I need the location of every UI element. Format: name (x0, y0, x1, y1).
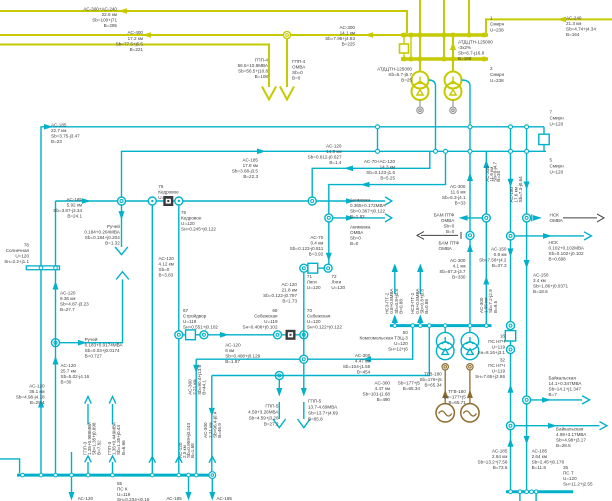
svg-text:4.47 км: 4.47 км (355, 358, 370, 363)
svg-text:14.3 км: 14.3 км (326, 149, 341, 154)
svg-text:ОМВА: ОМВА (550, 218, 564, 223)
svg-text:B=221: B=221 (130, 47, 144, 52)
svg-text:Sb=0.612-j0.627: Sb=0.612-j0.627 (308, 155, 342, 160)
svg-text:B=1.73: B=1.73 (282, 299, 297, 304)
svg-text:Sb=104-j1.55: Sb=104-j1.55 (343, 364, 371, 369)
svg-text:Sb=4.59+j3.26: Sb=4.59+j3.26 (249, 416, 279, 421)
svg-text:Sb=0.184+j0.204: Sb=0.184+j0.204 (85, 235, 120, 240)
svg-text:B=44.1: B=44.1 (201, 380, 206, 395)
svg-text:B=65.34: B=65.34 (403, 386, 421, 391)
svg-text:U=120: U=120 (15, 254, 29, 259)
svg-text:16: 16 (500, 334, 506, 339)
svg-text:Sb=5.02-j4.16: Sb=5.02-j4.16 (61, 374, 90, 379)
svg-text:Sb=176+j5: Sb=176+j5 (419, 377, 442, 382)
svg-text:АС-240: АС-240 (566, 16, 582, 21)
svg-text:АС-70+АС-120: АС-70+АС-120 (364, 159, 396, 164)
svg-text:Sн=2.2+j1.1: Sн=2.2+j1.1 (4, 259, 29, 264)
svg-text:B=108: B=108 (255, 74, 269, 79)
svg-text:B=0.698: B=0.698 (549, 257, 567, 262)
svg-text:6 км: 6 км (225, 348, 234, 353)
svg-text:Sb=101-j1.68: Sb=101-j1.68 (363, 392, 391, 397)
svg-text:Sb=0: Sb=0 (350, 236, 361, 241)
svg-text:0.183+0.0174МВА: 0.183+0.0174МВА (85, 343, 124, 348)
svg-text:АС-400: АС-400 (128, 30, 144, 35)
svg-text:АС-300: АС-300 (340, 25, 356, 30)
svg-text:21.3 км: 21.3 км (566, 21, 581, 26)
svg-text:B=1.4: B=1.4 (329, 160, 342, 165)
svg-text:B=1.97: B=1.97 (225, 359, 240, 364)
svg-text:Sн=0.245+j0.122: Sн=0.245+j0.122 (181, 227, 216, 232)
svg-text:B=490: B=490 (377, 397, 391, 402)
svg-text:B=3.83: B=3.83 (159, 273, 174, 278)
svg-text:Смирн: Смирн (490, 72, 505, 77)
svg-text:4.59+3.26МВА: 4.59+3.26МВА (248, 410, 279, 415)
svg-text:Байкальская: Байкальская (549, 375, 577, 381)
svg-text:Sb=6.7-j6.7: Sb=6.7-j6.7 (388, 72, 412, 77)
svg-text:2.64 км: 2.64 км (532, 454, 547, 459)
svg-text:B=1.32: B=1.32 (105, 241, 120, 246)
svg-text:B=46.9: B=46.9 (217, 423, 222, 438)
svg-text:ГПП-4: ГПП-4 (292, 59, 306, 64)
svg-text:B=23: B=23 (51, 139, 62, 144)
svg-text:БАМ ПТФ: БАМ ПТФ (439, 241, 460, 246)
svg-text:Sb=13.7+j4.69: Sb=13.7+j4.69 (308, 411, 338, 416)
svg-text:Байкальская: Байкальская (556, 426, 584, 432)
svg-text:B=164: B=164 (566, 32, 580, 37)
svg-text:Sb=0.123-j0.811: Sb=0.123-j0.811 (290, 246, 324, 251)
svg-text:B=28.5: B=28.5 (556, 443, 571, 448)
svg-text:50: 50 (403, 330, 409, 335)
svg-text:B=65.8: B=65.8 (308, 417, 323, 422)
svg-text:B=25: B=25 (401, 78, 412, 83)
svg-text:U=120: U=120 (563, 476, 577, 481)
svg-text:Sb=100+j71: Sb=100+j71 (92, 17, 117, 22)
svg-text:ПС НГЧ: ПС НГЧ (488, 339, 505, 344)
svg-text:Sb=2.45+j0.178: Sb=2.45+j0.178 (532, 460, 565, 465)
svg-text:4.98+3.17МВА: 4.98+3.17МВА (556, 432, 587, 437)
svg-text:Sн=11.2+j2.55: Sн=11.2+j2.55 (563, 481, 593, 486)
svg-text:21.8 км: 21.8 км (282, 288, 297, 293)
svg-text:56.5+10.8МВА: 56.5+10.8МВА (238, 63, 269, 68)
svg-text:АС-70: АС-70 (310, 235, 323, 240)
svg-text:17.8 км: 17.8 км (243, 163, 258, 168)
svg-text:2.64 км: 2.64 км (492, 454, 507, 459)
svg-text:Sb=67.2-j3.7: Sb=67.2-j3.7 (439, 269, 466, 274)
svg-text:Sb=7.95+j4.83: Sb=7.95+j4.83 (325, 36, 355, 41)
svg-text:Стройдвор: Стройдвор (183, 313, 207, 319)
svg-text:0.184+0.204МВА: 0.184+0.204МВА (84, 230, 120, 235)
svg-text:B=295: B=295 (104, 23, 118, 28)
svg-text:Sb=56.5+j10.8: Sb=56.5+j10.8 (238, 69, 268, 74)
svg-text:Sb=6.3-j4.1: Sb=6.3-j4.1 (442, 195, 466, 200)
svg-text:АС-120: АС-120 (282, 282, 298, 287)
svg-text:Смирн: Смирн (550, 164, 565, 169)
svg-text:3.4 км: 3.4 км (533, 278, 546, 283)
svg-text:Себежская: Себежская (254, 314, 278, 319)
svg-text:ТГВ-180: ТГВ-180 (424, 372, 442, 377)
svg-text:76: 76 (158, 184, 164, 189)
svg-text:Sb=0.408+j0.129: Sb=0.408+j0.129 (225, 354, 260, 359)
svg-text:B=7.82: B=7.82 (96, 440, 101, 455)
svg-text:U=238: U=238 (490, 28, 504, 33)
svg-text:ОМВА: ОМВА (292, 65, 306, 70)
svg-text:0.9 км: 0.9 км (494, 252, 507, 257)
svg-text:72: 72 (331, 274, 337, 279)
svg-text:Sb=13.2+j7.56: Sb=13.2+j7.56 (478, 460, 508, 465)
svg-text:АТДЦТН-125000: АТДЦТН-125000 (377, 67, 412, 72)
svg-text:ГПП-5: ГПП-5 (308, 399, 322, 404)
svg-text:B=18.6: B=18.6 (533, 289, 548, 294)
svg-text:B=27.2: B=27.2 (264, 422, 279, 427)
svg-text:Sb=0: Sb=0 (292, 70, 303, 75)
svg-text:БАМ ПТФ: БАМ ПТФ (434, 212, 455, 217)
svg-text:Смирн: Смирн (550, 116, 565, 121)
svg-text:B=3.92: B=3.92 (309, 252, 324, 257)
svg-text:14.1 км: 14.1 км (340, 31, 355, 36)
svg-text:B=29.4: B=29.4 (30, 400, 45, 405)
svg-text:B=65.71: B=65.71 (449, 400, 467, 405)
svg-text:B=0: B=0 (292, 76, 301, 81)
svg-text:B=30: B=30 (61, 380, 72, 385)
svg-text:АС-300: АС-300 (375, 381, 391, 386)
svg-text:АС-150: АС-150 (533, 273, 549, 278)
svg-text:14.1+0.347МВА: 14.1+0.347МВА (549, 381, 583, 386)
svg-text:ГПП-5: ГПП-5 (265, 404, 279, 409)
svg-text:Смирн: Смирн (490, 22, 505, 27)
svg-text:АС-150: АС-150 (491, 247, 507, 252)
svg-text:Sb=4.74+j4.34: Sb=4.74+j4.34 (566, 27, 596, 32)
svg-text:71: 71 (307, 274, 313, 279)
svg-text:Себежская: Себежская (307, 314, 331, 319)
svg-text:Кедровое: Кедровое (181, 216, 202, 221)
svg-text:Sb=4.87-j3.23: Sb=4.87-j3.23 (60, 302, 89, 307)
svg-text:Sн=0.551+j0.102: Sн=0.551+j0.102 (183, 325, 218, 330)
svg-text:U=119: U=119 (264, 319, 278, 324)
svg-text:B=0: B=0 (446, 229, 455, 234)
svg-text:Кедровое: Кедровое (158, 190, 179, 195)
svg-text:U=120: U=120 (394, 341, 408, 346)
svg-text:B=33: B=33 (455, 201, 466, 206)
svg-text:АС-120: АС-120 (225, 343, 241, 348)
svg-text:Комсомольская ТЭЦ-3: Комсомольская ТЭЦ-3 (360, 336, 409, 341)
svg-text:Sb=14.1+j1.347: Sb=14.1+j1.347 (549, 387, 582, 392)
svg-text:22.6 км: 22.6 км (102, 12, 117, 17)
svg-text:B=0: B=0 (350, 241, 359, 246)
svg-text:13.7-4.69МВА: 13.7-4.69МВА (308, 405, 338, 410)
svg-text:НСК: НСК (549, 240, 559, 245)
svg-text:4.47 км: 4.47 км (375, 386, 390, 391)
svg-text:АС-120: АС-120 (60, 291, 76, 296)
svg-text:B=11.8: B=11.8 (532, 465, 547, 470)
svg-text:АС-185: АС-185 (243, 158, 259, 163)
svg-text:Sb=0: Sb=0 (159, 267, 170, 272)
svg-text:B=1.82: B=1.82 (350, 214, 365, 219)
svg-text:1: 1 (490, 16, 493, 21)
svg-text:B=330: B=330 (452, 275, 466, 280)
svg-text:B=30: B=30 (496, 170, 501, 181)
svg-text:Акимовка: Акимовка (350, 225, 371, 230)
svg-text:ПС К: ПС К (117, 487, 128, 492)
svg-text:5.92 км: 5.92 км (67, 203, 82, 208)
svg-text:Sb=3.87-j3.34: Sb=3.87-j3.34 (53, 208, 82, 213)
svg-text:АС-120: АС-120 (61, 363, 77, 368)
svg-text:11.6 км: 11.6 км (450, 190, 465, 195)
svg-text:-3х2%: -3х2% (458, 45, 471, 50)
svg-text:АС-300: АС-300 (355, 353, 371, 358)
svg-text:B=37.3: B=37.3 (492, 263, 507, 268)
svg-text:ПС НГЧ: ПС НГЧ (488, 363, 505, 368)
svg-text:Sb=177+j5: Sb=177+j5 (444, 395, 467, 400)
svg-text:U=238: U=238 (490, 78, 504, 83)
svg-text:9.36 км: 9.36 км (60, 296, 75, 301)
svg-text:U=122: U=122 (158, 195, 172, 200)
svg-text:Ляги: Ляги (307, 280, 317, 285)
svg-text:Sb=77.5+j5.5: Sb=77.5+j5.5 (116, 41, 144, 46)
svg-text:ТГВ-180: ТГВ-180 (448, 389, 466, 394)
svg-text:35: 35 (563, 465, 569, 470)
svg-text:U=120: U=120 (550, 170, 564, 175)
svg-text:АС-185: АС-185 (532, 449, 548, 454)
svg-text:Акимовка: Акимовка (350, 198, 371, 203)
svg-text:Sb=0.122-j0.797: Sb=0.122-j0.797 (263, 293, 297, 298)
svg-text:B=1.68: B=1.68 (190, 443, 195, 458)
svg-text:Sb=6.7-j16.8: Sb=6.7-j16.8 (458, 51, 485, 56)
svg-text:22.7 км: 22.7 км (51, 128, 66, 133)
svg-text:U=119: U=119 (492, 369, 506, 374)
svg-text:0.365+0.172МВА: 0.365+0.172МВА (350, 203, 386, 208)
svg-text:Sb=0.03+j0.0174: Sb=0.03+j0.0174 (85, 348, 120, 353)
svg-text:АС-120: АС-120 (29, 384, 45, 389)
svg-text:U=119: U=119 (492, 345, 506, 350)
svg-text:АС-185: АС-185 (51, 122, 67, 127)
svg-text:B=5.25: B=5.25 (380, 176, 395, 181)
svg-text:78: 78 (24, 243, 30, 248)
svg-text:ГПП-4: ГПП-4 (255, 58, 269, 63)
svg-text:Sb=4.98-j4.18: Sb=4.98-j4.18 (16, 395, 45, 400)
svg-text:B=166: B=166 (458, 56, 472, 61)
svg-text:B=73.6: B=73.6 (493, 465, 508, 470)
svg-text:B=0.727: B=0.727 (85, 354, 103, 359)
svg-text:32: 32 (500, 358, 506, 363)
svg-text:АС-300+АС-240: АС-300+АС-240 (83, 6, 117, 11)
svg-text:Солнечная: Солнечная (6, 248, 30, 253)
svg-text:Sb=0.123-j1.6: Sb=0.123-j1.6 (366, 170, 395, 175)
svg-text:Sb=0: Sb=0 (443, 223, 454, 228)
svg-text:НСК: НСК (550, 213, 560, 218)
svg-text:Sн=8.16+j3.1: Sн=8.16+j3.1 (478, 350, 506, 355)
svg-text:U=119: U=119 (183, 319, 197, 324)
svg-text:U=120: U=120 (550, 122, 564, 127)
svg-text:75: 75 (181, 210, 187, 215)
svg-text:B=6.66: B=6.66 (121, 440, 126, 455)
svg-text:U=120: U=120 (307, 285, 321, 290)
svg-text:25.7 км: 25.7 км (61, 369, 76, 374)
svg-text:Sb=7.3-j0.64: Sb=7.3-j0.64 (518, 176, 523, 203)
svg-text:Sb=4.98+j3.17: Sb=4.98+j3.17 (556, 438, 586, 443)
svg-text:АС-120: АС-120 (326, 144, 342, 149)
svg-text:70: 70 (307, 308, 313, 313)
svg-text:B=0.88: B=0.88 (424, 299, 429, 314)
svg-text:B=225: B=225 (342, 42, 356, 47)
svg-text:Sн=0.234+j0.18: Sн=0.234+j0.18 (117, 497, 150, 501)
svg-text:B=0.88: B=0.88 (398, 299, 403, 314)
svg-text:Sн=12+j6: Sн=12+j6 (388, 347, 408, 352)
svg-text:Sb=177+j5: Sb=177+j5 (398, 381, 421, 386)
svg-text:АС-300: АС-300 (450, 258, 466, 263)
svg-text:Sb=1.86+j0.0371: Sb=1.86+j0.0371 (533, 284, 568, 289)
svg-text:Sb=7.58+j4.2: Sb=7.58+j4.2 (479, 258, 507, 263)
svg-text:4.12 км: 4.12 км (159, 262, 174, 267)
svg-text:Sн=0.408+j0.102: Sн=0.408+j0.102 (243, 325, 278, 330)
svg-text:АС-120: АС-120 (78, 496, 94, 501)
svg-text:Ручей: Ручей (85, 336, 98, 342)
svg-text:55: 55 (117, 481, 123, 486)
svg-text:5: 5 (550, 158, 553, 163)
svg-text:U=120: U=120 (331, 285, 345, 290)
svg-text:B=22.3: B=22.3 (243, 174, 258, 179)
svg-text:B=9.5: B=9.5 (493, 300, 498, 313)
svg-text:67: 67 (183, 308, 189, 313)
svg-text:ОМВА: ОМВА (350, 230, 364, 235)
svg-text:ОМВА: ОМВА (441, 218, 455, 223)
svg-text:14.3 км: 14.3 км (380, 165, 395, 170)
svg-text:Sb=3.75-j3.47: Sb=3.75-j3.47 (51, 133, 80, 138)
svg-text:Ляги: Ляги (331, 280, 341, 285)
svg-text:0.4 км: 0.4 км (310, 241, 323, 246)
svg-text:АС-185: АС-185 (217, 496, 233, 501)
svg-text:АТДЦТН-125000: АТДЦТН-125000 (458, 40, 493, 45)
svg-text:Sн=7.65+j2.86: Sн=7.65+j2.86 (475, 374, 505, 379)
svg-text:0.102+0.102МВА: 0.102+0.102МВА (549, 246, 585, 251)
svg-text:Ручей: Ручей (107, 223, 120, 229)
svg-text:4.1 км: 4.1 км (453, 264, 466, 269)
svg-text:АС-185: АС-185 (67, 197, 83, 202)
svg-text:69: 69 (272, 308, 278, 313)
svg-text:2: 2 (490, 66, 493, 71)
svg-text:АС-120: АС-120 (159, 256, 175, 261)
svg-text:Sb=0.367+j0.122: Sb=0.367+j0.122 (350, 209, 385, 214)
svg-text:B=24.1: B=24.1 (67, 214, 82, 219)
svg-text:36.1 км: 36.1 км (29, 389, 44, 394)
svg-text:B=65.34: B=65.34 (424, 383, 442, 388)
svg-text:АС-300: АС-300 (450, 184, 466, 189)
svg-text:7: 7 (550, 110, 553, 115)
svg-text:Sb=3.68-j3.5: Sb=3.68-j3.5 (232, 169, 259, 174)
svg-text:Sн=0.122+j0.122: Sн=0.122+j0.122 (307, 325, 342, 330)
svg-text:17.2 км: 17.2 км (128, 36, 143, 41)
svg-text:АС-185: АС-185 (166, 496, 182, 501)
svg-text:B=7: B=7 (549, 392, 558, 397)
svg-text:B=27.7: B=27.7 (60, 307, 75, 312)
svg-text:ПС Т: ПС Т (563, 470, 574, 475)
svg-text:АС-185: АС-185 (492, 449, 508, 454)
svg-text:Sb=0.102+j0.102: Sb=0.102+j0.102 (549, 251, 584, 256)
svg-text:B=454: B=454 (357, 369, 371, 374)
svg-text:ОМВА: ОМВА (439, 246, 453, 251)
svg-text:U=120: U=120 (181, 221, 195, 226)
svg-text:U=120: U=120 (307, 319, 321, 324)
